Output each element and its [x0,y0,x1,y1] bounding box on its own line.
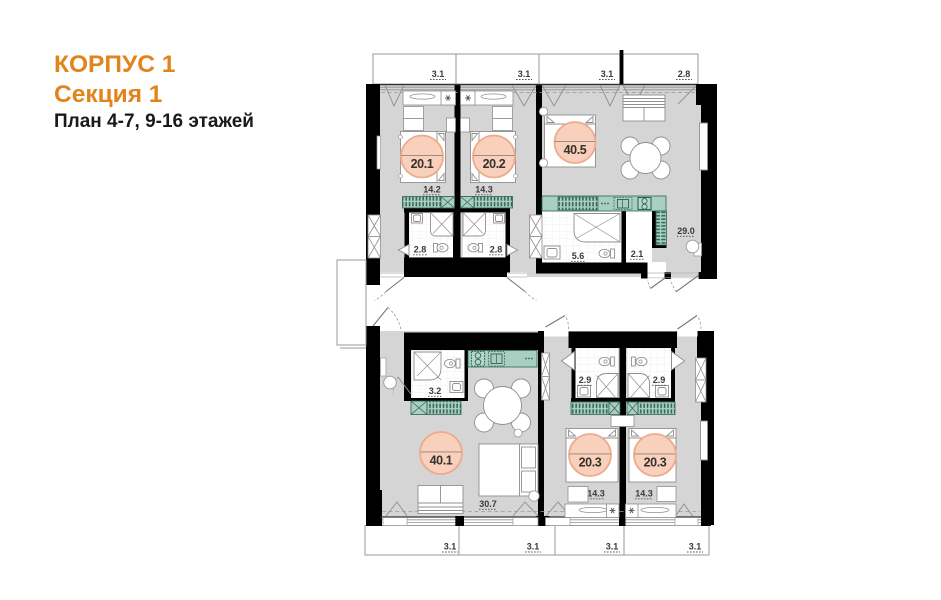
svg-text:40.5: 40.5 [564,143,587,157]
svg-text:3.1: 3.1 [527,542,540,552]
svg-text:29.0: 29.0 [677,226,695,236]
svg-text:3.1: 3.1 [601,69,614,79]
svg-text:20.3: 20.3 [579,456,602,470]
svg-text:2.9: 2.9 [653,375,666,385]
svg-text:3.2: 3.2 [429,386,442,396]
svg-text:14.2: 14.2 [423,185,441,195]
svg-text:14.3: 14.3 [475,185,493,195]
svg-text:5.6: 5.6 [572,251,585,261]
svg-text:2.1: 2.1 [631,249,644,259]
svg-text:3.1: 3.1 [444,542,457,552]
svg-text:3.1: 3.1 [606,542,619,552]
svg-text:3.1: 3.1 [518,69,531,79]
svg-text:План 4-7, 9-16 этажей: План 4-7, 9-16 этажей [54,111,254,132]
svg-text:20.3: 20.3 [644,456,667,470]
svg-text:КОРПУС 1: КОРПУС 1 [54,51,175,78]
svg-text:40.1: 40.1 [430,454,453,468]
svg-text:30.7: 30.7 [479,499,497,509]
svg-text:2.9: 2.9 [579,375,592,385]
svg-text:20.1: 20.1 [411,157,434,171]
svg-text:3.1: 3.1 [432,69,445,79]
svg-text:2.8: 2.8 [490,245,503,255]
svg-text:14.3: 14.3 [635,489,653,499]
svg-text:2.8: 2.8 [414,245,427,255]
svg-text:2.8: 2.8 [678,69,691,79]
svg-text:20.2: 20.2 [483,157,506,171]
svg-text:14.3: 14.3 [587,489,605,499]
svg-text:Секция 1: Секция 1 [54,81,162,108]
svg-text:3.1: 3.1 [689,542,702,552]
